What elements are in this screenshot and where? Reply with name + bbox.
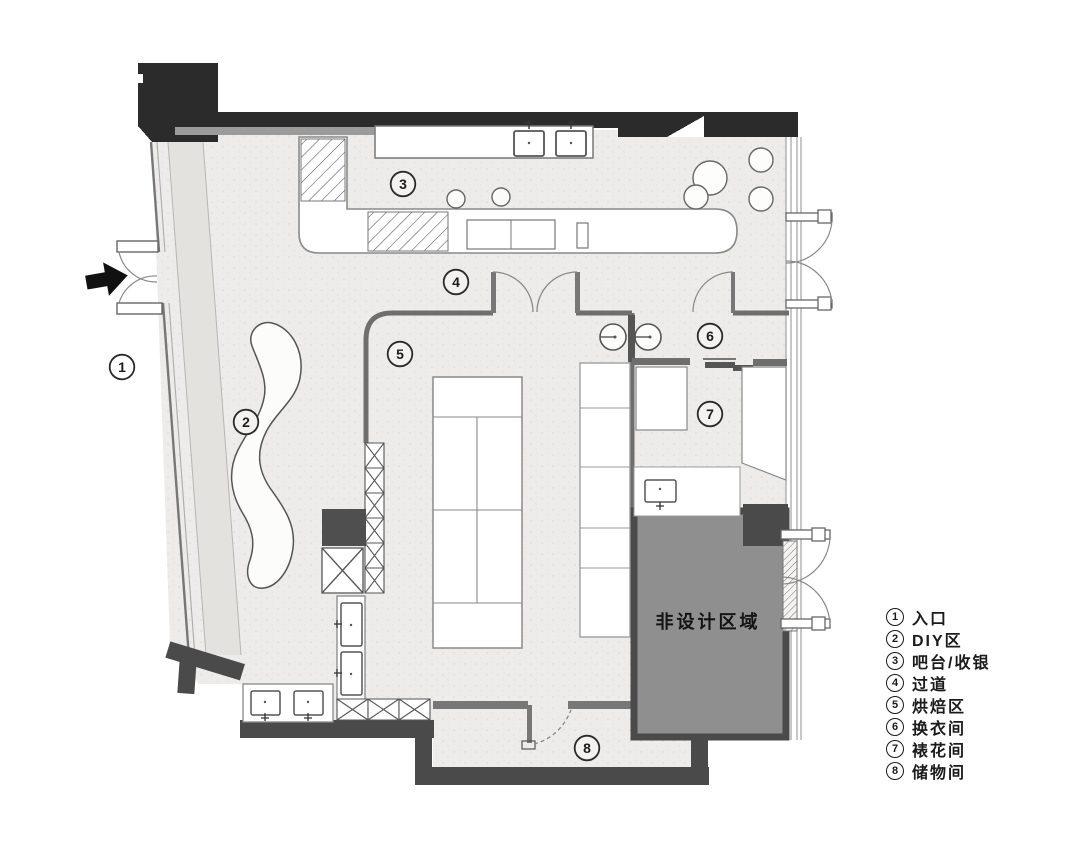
legend-item-entrance: 1 入口 — [886, 606, 1056, 628]
svg-text:1: 1 — [118, 359, 126, 375]
legend-item-corridor: 4 过道 — [886, 672, 1056, 694]
legend-num: 1 — [886, 608, 904, 626]
bar-stool — [492, 188, 510, 206]
legend-item-bar-cashier: 3 吧台/收银 — [886, 650, 1056, 672]
equipment-block — [322, 509, 366, 546]
changing-room-partition — [628, 315, 635, 362]
legend-item-baking-area: 5 烘焙区 — [886, 694, 1056, 716]
label-bar-cashier: 3 — [391, 172, 416, 197]
svg-text:3: 3 — [399, 176, 407, 192]
label-decorating-room: 7 — [698, 402, 723, 427]
svg-text:4: 4 — [452, 274, 460, 290]
shelving-unit — [580, 363, 630, 637]
bar-stool — [447, 190, 465, 208]
counter-appliance — [577, 223, 588, 248]
label-baking-area: 5 — [388, 342, 413, 367]
legend-num: 8 — [886, 762, 904, 780]
decorating-counter — [742, 367, 786, 480]
svg-text:5: 5 — [396, 346, 404, 362]
legend-label: 换衣间 — [912, 715, 966, 739]
floor-plan-page: 非设计区域 — [0, 0, 1080, 861]
svg-text:8: 8 — [583, 740, 591, 756]
legend-item-diy-area: 2 DIY区 — [886, 628, 1056, 650]
label-diy-area: 2 — [234, 410, 259, 435]
legend-item-decorating-room: 7 裱花间 — [886, 738, 1056, 760]
baking-island — [433, 377, 522, 648]
legend-label: 入口 — [912, 605, 948, 629]
legend-label: 储物间 — [912, 759, 966, 783]
right-wall-hatch — [783, 541, 797, 631]
legend-num: 3 — [886, 652, 904, 670]
top-wall-right — [618, 112, 798, 137]
cabinet-row — [337, 699, 430, 720]
legend-num: 4 — [886, 674, 904, 692]
cabinet-box — [322, 548, 363, 593]
legend-label: 烘焙区 — [912, 693, 966, 717]
decorating-sink-strip — [634, 467, 740, 516]
label-corridor: 4 — [444, 270, 469, 295]
legend-num: 2 — [886, 630, 904, 648]
display-case — [368, 212, 448, 251]
cabinet-column — [365, 443, 384, 593]
legend-num: 7 — [886, 740, 904, 758]
wash-sink-counter — [243, 684, 333, 722]
display-case — [301, 139, 345, 201]
svg-text:7: 7 — [706, 406, 714, 422]
non-design-area: 非设计区域 — [634, 504, 788, 737]
legend-num: 6 — [886, 718, 904, 736]
sink — [645, 480, 676, 502]
legend-label: 吧台/收银 — [912, 649, 990, 673]
svg-text:6: 6 — [706, 328, 714, 344]
non-design-area-label: 非设计区域 — [656, 611, 761, 632]
legend-item-storage-room: 8 储物间 — [886, 760, 1056, 782]
prep-sink-counter — [334, 596, 365, 701]
legend-label: 过道 — [912, 671, 948, 695]
legend-num: 5 — [886, 696, 904, 714]
svg-text:2: 2 — [242, 414, 250, 430]
right-upper-french-doors — [786, 210, 832, 310]
legend-label: DIY区 — [912, 627, 963, 651]
legend: 1 入口 2 DIY区 3 吧台/收银 4 过道 5 烘焙区 6 换衣间 7 裱… — [886, 606, 1056, 782]
label-entrance: 1 — [110, 355, 135, 380]
label-changing-room: 6 — [698, 324, 723, 349]
bar-back-counter — [375, 120, 593, 158]
label-storage-room: 8 — [575, 736, 600, 761]
decorating-table — [636, 367, 687, 430]
legend-item-changing-room: 6 换衣间 — [886, 716, 1056, 738]
bottom-wall — [240, 720, 434, 738]
wall-inner-face — [175, 127, 375, 135]
legend-label: 裱花间 — [912, 737, 966, 761]
